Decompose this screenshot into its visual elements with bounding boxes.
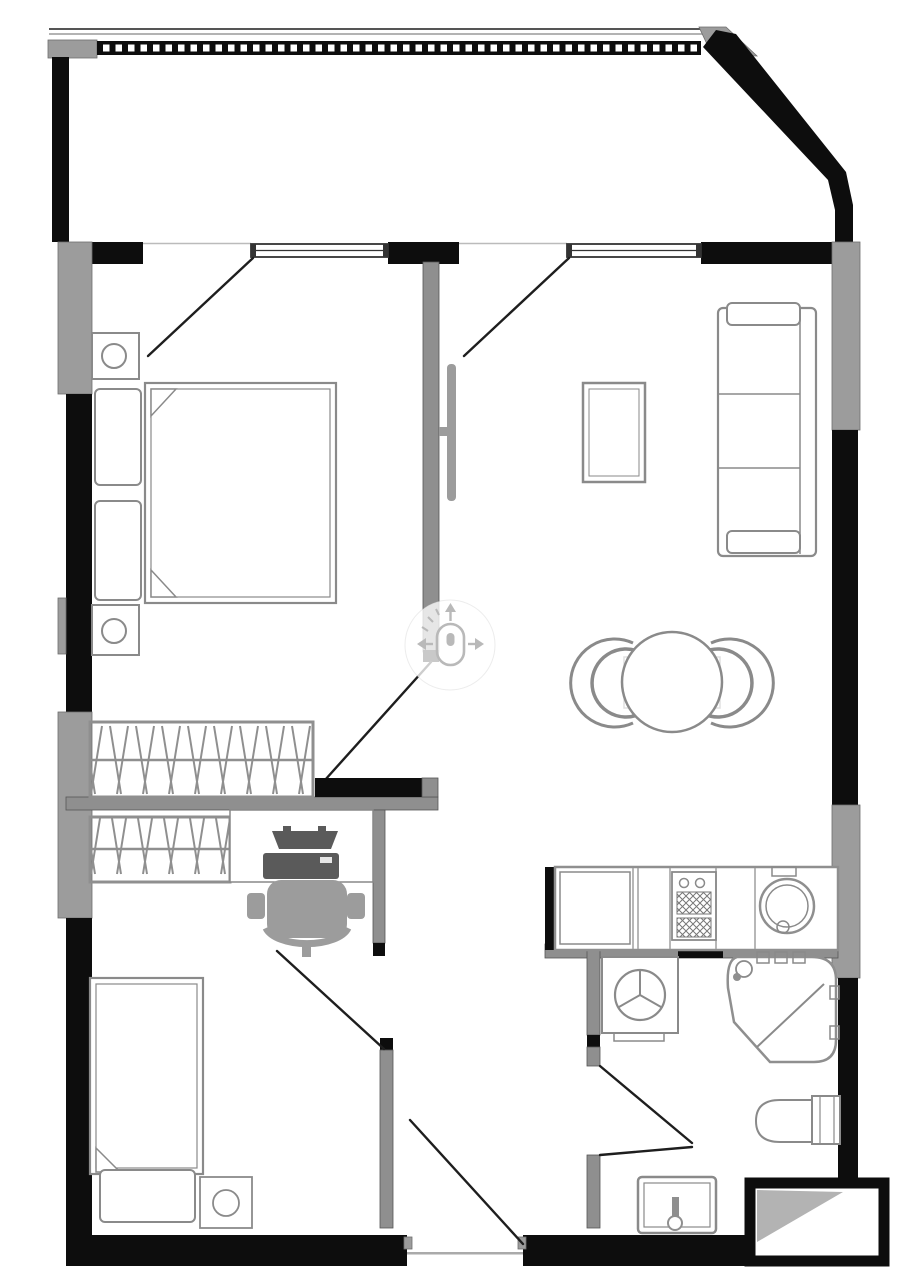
wall-tv: [447, 364, 456, 501]
balcony-corner-cap: [48, 40, 97, 58]
laptop-screen: [272, 831, 338, 849]
chair-armrest: [347, 893, 365, 919]
toilet-bowl: [756, 1100, 812, 1142]
left-wall-notch: [58, 598, 66, 654]
second-bedroom: [90, 978, 252, 1228]
bedroom-balcony-door-swing: [148, 258, 253, 356]
burner-grate: [677, 892, 711, 914]
bath-door-jamb-bottom: [587, 1155, 600, 1228]
double-bed: [145, 383, 336, 603]
chair-armrest: [247, 893, 265, 919]
tv-mount: [439, 427, 448, 436]
toilet-tank: [812, 1096, 840, 1144]
coffee-table: [583, 383, 645, 482]
bedroom-south-wall-black: [315, 778, 422, 797]
left-window-upper: [58, 242, 92, 394]
top-wall-right: [701, 242, 832, 264]
panel-cap: [251, 244, 256, 257]
living-balcony-door-swing: [464, 258, 569, 356]
pillow: [95, 389, 141, 485]
corner-bathtub: [728, 957, 836, 1062]
mouse-wheel-icon: [447, 633, 455, 646]
bottom-wall-right: [523, 1235, 745, 1266]
study-hall: [90, 810, 373, 957]
nightstand: [92, 605, 139, 655]
bedroom-door-swing: [325, 662, 431, 780]
laptop-touchpad: [320, 857, 332, 863]
burner-grate: [677, 918, 711, 937]
bedroom-south-wall: [66, 797, 438, 810]
balcony: [48, 27, 853, 242]
right-wall-upper: [832, 430, 858, 805]
nightstand: [200, 1177, 252, 1228]
second-bedroom-east-wall: [380, 1050, 393, 1228]
floor-plan-drawing: [0, 0, 921, 1280]
counter-end-wall: [545, 867, 555, 950]
tub-knob: [733, 973, 741, 981]
laptop-keyboard: [263, 853, 339, 879]
left-wall-lower: [66, 918, 92, 1248]
floor-plan-canvas[interactable]: [0, 0, 921, 1280]
bath-wall-cap: [587, 1035, 600, 1047]
round-dining-table: [622, 632, 722, 732]
bottom-wall-left: [66, 1235, 407, 1266]
top-wall-middle: [388, 242, 459, 264]
bedroom-living-divider-wall: [423, 262, 439, 652]
panel-cap: [696, 244, 701, 257]
chair-stem: [302, 944, 311, 957]
balcony-left-wall: [52, 57, 69, 242]
kitchen: [545, 867, 838, 950]
office-chair-seat: [267, 880, 347, 938]
bath-door-swing-upper: [600, 1066, 692, 1143]
panel-cap: [383, 244, 388, 257]
living-room: [571, 303, 816, 732]
bath-door-swing-lower: [600, 1147, 692, 1155]
pillow: [100, 1170, 195, 1222]
balcony-railing: [97, 41, 701, 55]
bedroom: [90, 333, 456, 797]
entry-threshold: [407, 1252, 523, 1255]
study-wall-cap: [373, 943, 385, 956]
second-bedroom-door-swing: [277, 951, 384, 1049]
panel-cap: [567, 244, 572, 257]
bedroom-door-jamb: [422, 778, 438, 797]
single-bed: [90, 978, 203, 1174]
nightstand: [92, 333, 139, 379]
balcony-diagonal-wall: [703, 30, 853, 242]
study-east-wall: [373, 810, 385, 943]
sofa-armrest: [727, 531, 800, 553]
left-window-lower: [58, 712, 92, 918]
right-window-upper: [832, 242, 860, 430]
door-jamb: [404, 1237, 412, 1249]
pan-mouse-icon[interactable]: [405, 600, 495, 690]
basin-drain: [668, 1216, 682, 1230]
front-door-swing: [410, 1120, 523, 1244]
sofa-armrest: [727, 303, 800, 325]
bath-west-wall-upper: [587, 950, 600, 1035]
left-wall-upper: [66, 394, 92, 712]
pillow: [95, 501, 141, 600]
right-wall-lower: [838, 978, 858, 1180]
bath-door-jamb-top: [587, 1047, 600, 1066]
sofa: [718, 308, 816, 556]
washer-door: [614, 1033, 664, 1041]
round-sink: [760, 879, 814, 933]
